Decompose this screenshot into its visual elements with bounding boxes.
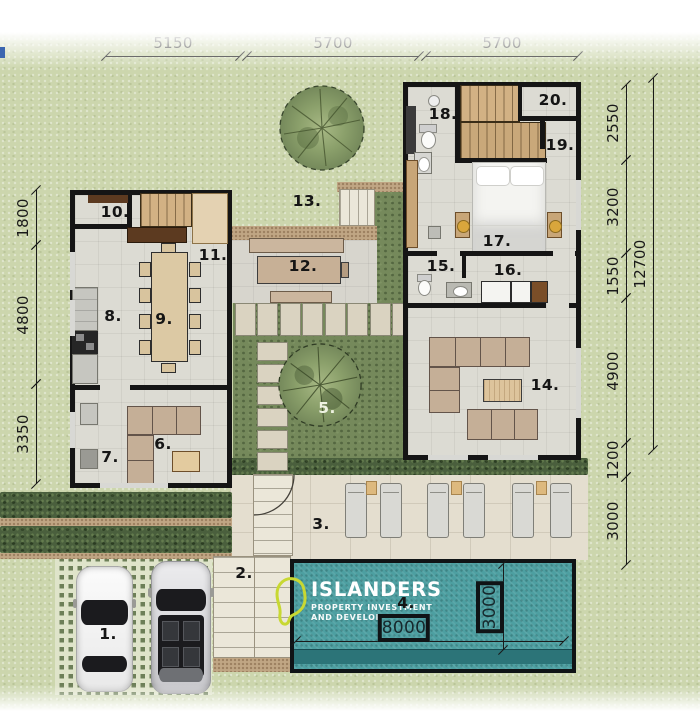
dimension-line [36,190,37,245]
room-label-18: 18. [429,105,458,123]
outdoor-bench [270,291,332,303]
pool-bench [294,649,572,664]
dimension-label: 2550 [604,103,622,142]
dimension-line [653,78,654,450]
dining-chair [161,363,176,373]
blanket-fold [473,225,545,226]
window [576,180,581,230]
island-handle [341,262,349,278]
mirror [132,599,136,608]
lounger-side-table [366,481,377,495]
wall-segment [462,256,466,278]
wall-segment [540,121,545,149]
oven-icon [76,334,84,341]
dining-chair [189,288,201,303]
lamp-icon [549,220,562,233]
sofa [467,409,538,440]
toilet-icon [421,131,436,149]
dimension-line [626,85,627,160]
logo-name: ISLANDERS [311,580,442,600]
islanders-logo-mark-icon [272,576,312,628]
dimension-line [106,56,240,57]
room-label-7: 7. [101,448,118,466]
dining-table [151,252,188,362]
room-label-1: 1. [99,625,116,643]
cabinet [127,227,187,243]
sun-lounger [463,483,485,538]
dining-chair [189,340,201,355]
lawn-steps [339,189,375,226]
room-label-12: 12. [289,257,318,275]
lounger-headrest [466,492,482,493]
stepping-paver [280,303,301,336]
lounger-headrest [430,492,446,493]
shower [406,106,416,154]
toilet-icon [418,280,431,296]
sofa-l-horizontal [429,337,530,367]
stepping-paver [257,303,278,336]
dimension-line [626,298,627,443]
dimension-label: 5700 [313,34,352,52]
stool [428,226,441,239]
stairs-lower [460,122,546,162]
window [70,252,75,290]
garden-path [0,518,232,526]
room-label-17: 17. [483,232,512,250]
wall-segment [569,303,581,308]
stepping-paver [257,452,288,471]
room-label-6: 6. [154,435,171,453]
room-label-20: 20. [539,91,568,109]
dimension-line [626,477,627,565]
dimension-line [247,56,419,57]
sun-lounger [550,483,572,538]
closet-unit-wood [531,281,548,303]
dimension-label: 1200 [604,440,622,479]
seat-icon [183,621,200,641]
room-label-2: 2. [235,564,252,582]
lounger-side-table [536,481,547,495]
room-label-3: 3. [312,515,329,533]
seat-icon [162,621,179,641]
room-label-10: 10. [101,203,130,221]
dimension-line [626,253,627,298]
dimension-label: 3350 [14,414,32,453]
dimension-label: 3200 [604,187,622,226]
dining-chair [139,340,151,355]
sun-lounger [345,483,367,538]
window [428,455,468,460]
dimension-label: 5700 [482,34,521,52]
sun-lounger [380,483,402,538]
room-label-15: 15. [427,257,456,275]
door-swing-arc [253,474,295,516]
dining-chair [189,314,201,329]
wall-segment [70,224,132,229]
hall-cabinet [80,403,98,425]
dimension-line [426,56,578,57]
room-label-16: 16. [494,261,523,279]
stepping-paver [370,303,391,336]
lounger-headrest [348,492,364,493]
stepping-paver [257,430,288,449]
room-label-5: 5. [318,399,335,417]
basin-icon [418,157,430,172]
sofa-l-vertical [127,435,154,484]
sofa-l-horizontal [127,406,201,435]
wall-segment [460,251,553,256]
window [70,300,75,336]
pillow [510,166,544,186]
mirror [148,588,152,597]
dimension-line [36,245,37,384]
basin-icon [453,286,468,297]
floor-plan: ISLANDERS PROPERTY INVESTMENT AND DEVELO… [0,0,700,725]
entry-steps-edge [213,658,291,672]
side-table [172,451,200,472]
wall-segment [403,251,437,256]
seat-icon [162,647,179,667]
wall-segment [130,385,232,390]
coffee-table [483,379,522,402]
dining-chair [139,314,151,329]
mirror [210,588,214,597]
lounger-headrest [515,492,531,493]
window [576,348,581,418]
room-label-11: 11. [199,246,228,264]
wardrobe [88,195,128,203]
sun-lounger [427,483,449,538]
dining-chair [139,288,151,303]
dimension-label: 3000 [604,501,622,540]
stepping-paver [235,303,256,336]
kitchen-counter [72,287,98,331]
dimension-label: 12700 [631,239,649,288]
room-label-4: 4. [397,594,414,612]
garden-strip [375,188,405,304]
lamp-icon [457,220,470,233]
window [70,412,75,448]
step-joint [254,557,255,657]
wall-segment [70,385,100,390]
dimension-label: 1800 [14,198,32,237]
rear-window [82,656,127,672]
hedge-row [0,526,232,553]
tree-icon [277,83,367,173]
dimension-label: 4900 [604,351,622,390]
room-label-13: 13. [293,192,322,210]
dimension-line [626,160,627,253]
closet-unit [511,281,531,303]
lounger-side-table [451,481,462,495]
stepping-paver [302,303,323,336]
wall-segment [518,116,581,121]
seat-icon [183,647,200,667]
room-label-19: 19. [546,136,575,154]
kitchen-appliances [72,331,98,354]
closet-unit [481,281,511,303]
dimension-label: 5150 [153,34,192,52]
logo-tagline-line1: PROPERTY INVESTMENT [311,603,442,613]
wall-segment [403,303,546,308]
kitchen-counter [72,354,98,384]
stairs [140,193,192,227]
pillow [476,166,510,186]
dimension-label: 8000 [378,614,430,642]
dimension-label: 3000 [476,581,504,633]
room-label-8: 8. [104,307,121,325]
lounger-headrest [383,492,399,493]
sofa-l-vertical [429,367,460,413]
outdoor-counter [249,238,344,253]
stepping-paver [325,303,346,336]
window [488,455,538,460]
room-label-14: 14. [531,376,560,394]
dimension-line [36,384,37,484]
window [100,483,168,488]
garden-path [0,553,232,559]
stepping-paver [347,303,368,336]
stair-landing [192,193,228,244]
oven-icon [86,343,94,350]
mirror [73,599,77,608]
wall-segment [518,85,522,118]
sun-lounger [512,483,534,538]
hall-cabinet [80,449,98,469]
dining-chair [139,262,151,277]
windshield [156,589,206,611]
dimension-label: 4800 [14,295,32,334]
car-silver [151,561,211,694]
rear-window [159,668,203,682]
stairs-upper [460,85,520,122]
wall-segment [575,251,581,256]
edge-mark [0,47,5,58]
lounger-headrest [553,492,569,493]
dining-chair [161,243,176,253]
hedge-row [0,492,232,518]
room-label-9: 9. [155,310,172,328]
wardrobe [406,160,418,248]
dining-chair [189,262,201,277]
dimension-label: 1550 [604,256,622,295]
vanity [446,282,472,298]
windshield [81,600,128,625]
dimension-line [626,443,627,477]
